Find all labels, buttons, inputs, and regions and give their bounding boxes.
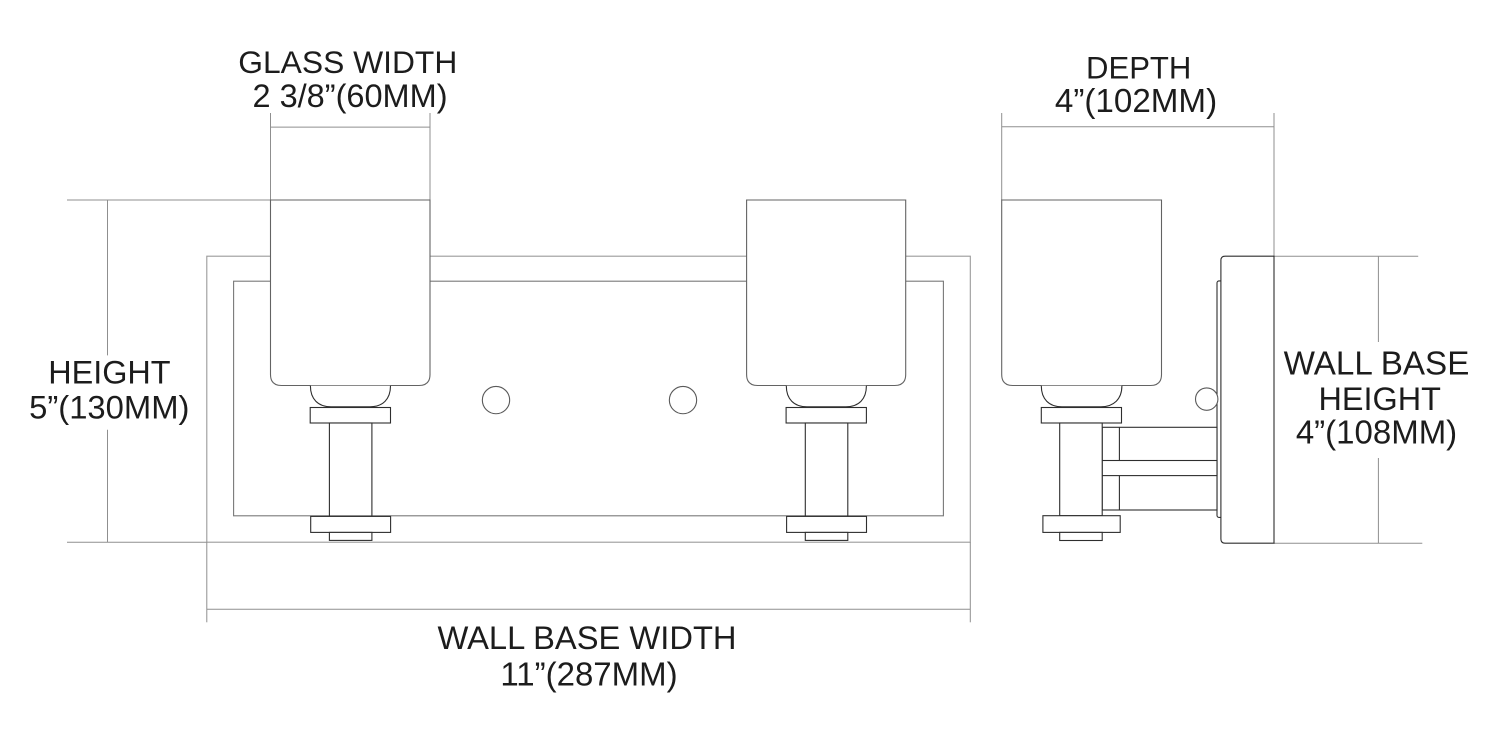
svg-text:5”(130MM): 5”(130MM) <box>29 389 189 426</box>
svg-text:2 3/8”(60MM): 2 3/8”(60MM) <box>252 78 447 114</box>
svg-text:11”(287MM): 11”(287MM) <box>500 656 677 693</box>
svg-text:WALL BASE WIDTH: WALL BASE WIDTH <box>437 619 736 656</box>
svg-text:WALL BASE: WALL BASE <box>1284 346 1470 383</box>
svg-text:4”(102MM): 4”(102MM) <box>1055 83 1217 120</box>
svg-text:GLASS WIDTH: GLASS WIDTH <box>238 44 457 80</box>
svg-text:HEIGHT: HEIGHT <box>1319 381 1442 417</box>
svg-text:HEIGHT: HEIGHT <box>48 355 171 391</box>
svg-text:4”(108MM): 4”(108MM) <box>1296 414 1457 451</box>
svg-text:DEPTH: DEPTH <box>1086 51 1191 86</box>
